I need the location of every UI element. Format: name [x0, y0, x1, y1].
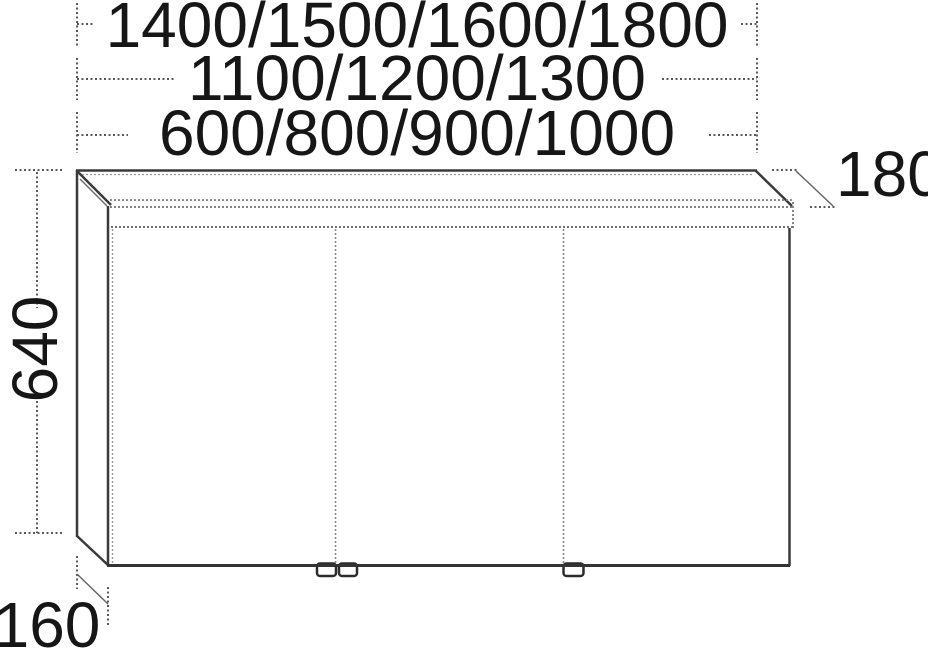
- canopy-left-bevel: [77, 171, 111, 205]
- side-panel-bottom-bevel: [77, 536, 109, 566]
- width-options-label-row3: 600/800/900/1000: [77, 101, 757, 165]
- cabinet-canopy: [76, 171, 792, 208]
- canopy-left-bevel-inner: [80, 179, 107, 206]
- body-depth-label: 160: [0, 593, 127, 650]
- dimension-drawing-canvas: 1400/1500/1600/1800 1100/1200/1300 600/8…: [0, 0, 928, 650]
- cabinet-carcass: [77, 170, 790, 566]
- light-strip: [107, 202, 794, 228]
- mirror-doors: [113, 229, 564, 564]
- cabinet-height-label: 640: [3, 269, 67, 429]
- canopy-depth-dimension-guides: [772, 170, 836, 207]
- canopy-depth-label: 180: [836, 142, 928, 206]
- dimension-line-diagonal: [796, 171, 833, 206]
